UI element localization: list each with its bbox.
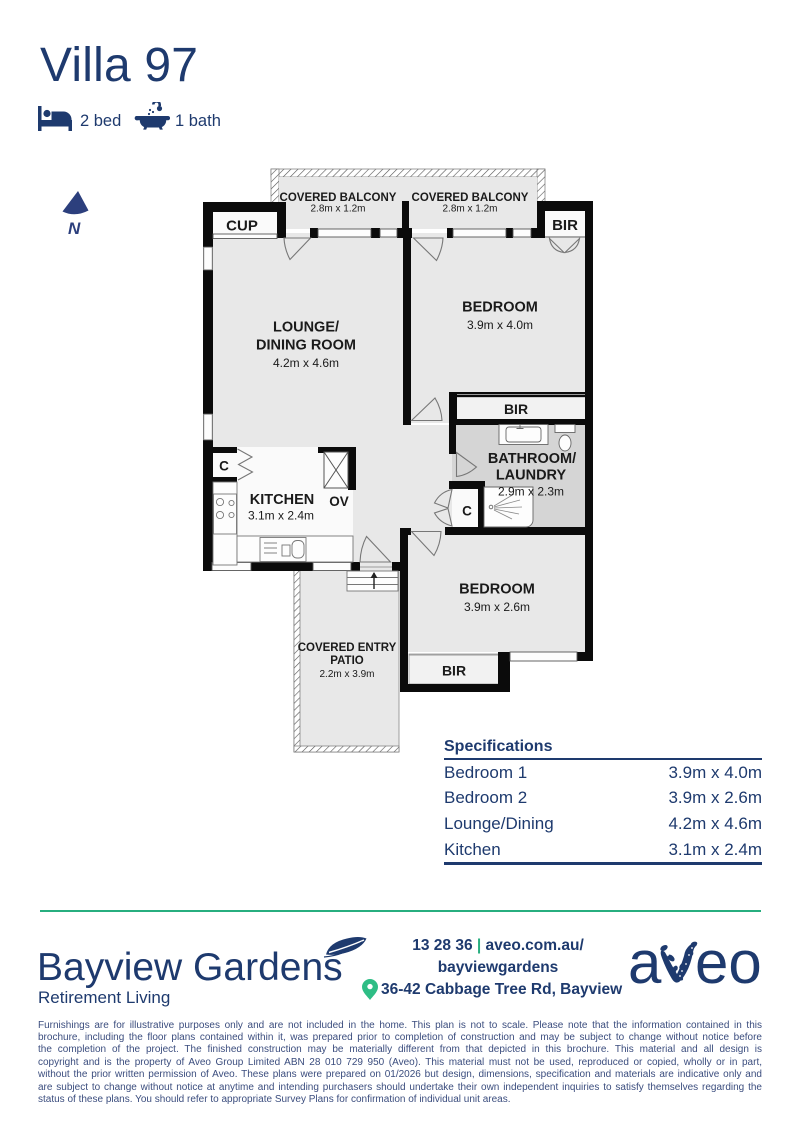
svg-text:BEDROOM: BEDROOM [459,582,535,598]
svg-text:3.9m x 4.0m: 3.9m x 4.0m [467,318,533,332]
svg-text:COVERED BALCONY: COVERED BALCONY [412,192,529,204]
svg-text:4.2m x 4.6m: 4.2m x 4.6m [273,356,339,370]
svg-text:COVERED BALCONY: COVERED BALCONY [280,192,397,204]
svg-text:CUP: CUP [226,218,258,235]
svg-text:eo: eo [695,938,762,993]
svg-text:BATHROOM/: BATHROOM/ [488,451,576,467]
svg-text:BIR: BIR [552,217,578,234]
svg-text:2.2m x 3.9m: 2.2m x 3.9m [319,669,374,680]
svg-text:KITCHEN: KITCHEN [250,492,314,508]
svg-text:2.9m x 2.3m: 2.9m x 2.3m [498,485,564,499]
svg-text:N: N [68,219,81,236]
svg-text:3.9m x 2.6m: 3.9m x 2.6m [464,600,530,614]
svg-text:PATIO: PATIO [330,655,363,667]
svg-text:3.1m x 2.4m: 3.1m x 2.4m [248,509,314,523]
svg-text:C: C [219,459,229,474]
svg-text:2.8m x 1.2m: 2.8m x 1.2m [310,204,365,215]
svg-text:BEDROOM: BEDROOM [462,300,538,316]
svg-text:BIR: BIR [442,663,466,679]
svg-text:2.8m x 1.2m: 2.8m x 1.2m [442,204,497,215]
svg-text:a: a [628,938,662,993]
svg-text:LOUNGE/: LOUNGE/ [273,320,339,336]
svg-text:COVERED ENTRY: COVERED ENTRY [298,642,397,654]
svg-text:LAUNDRY: LAUNDRY [496,468,567,484]
svg-text:OV: OV [329,494,349,509]
svg-text:DINING ROOM: DINING ROOM [256,338,356,354]
svg-text:BIR: BIR [504,401,528,417]
svg-text:C: C [462,504,472,519]
